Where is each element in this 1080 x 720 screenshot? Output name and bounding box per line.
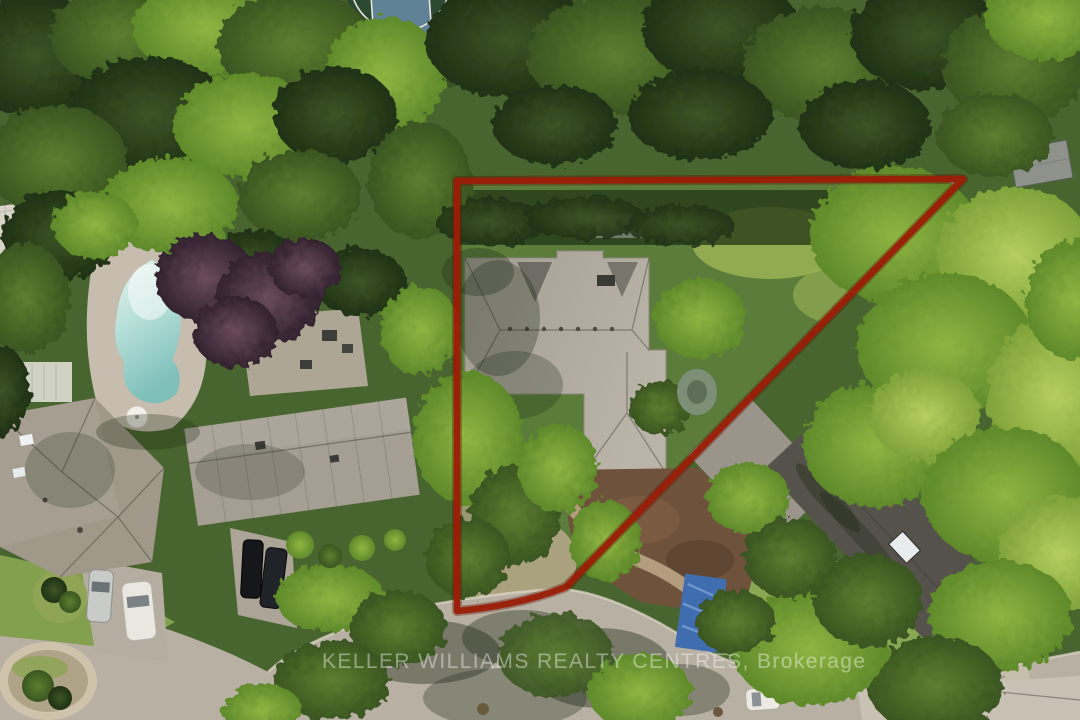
watermark-text: KELLER WILLIAMS REALTY CENTRES, Brokerag… (322, 650, 866, 673)
cul-de-sac-island (0, 642, 97, 720)
chimney (597, 275, 615, 286)
car-dark-1 (240, 540, 263, 599)
garden-bed (33, 569, 87, 623)
car-white-left (121, 580, 157, 641)
car-silver (86, 569, 114, 623)
aerial-photo-canvas: KELLER WILLIAMS REALTY CENTRES, Brokerag… (0, 0, 1080, 720)
aerial-photo: KELLER WILLIAMS REALTY CENTRES, Brokerag… (0, 0, 1080, 720)
